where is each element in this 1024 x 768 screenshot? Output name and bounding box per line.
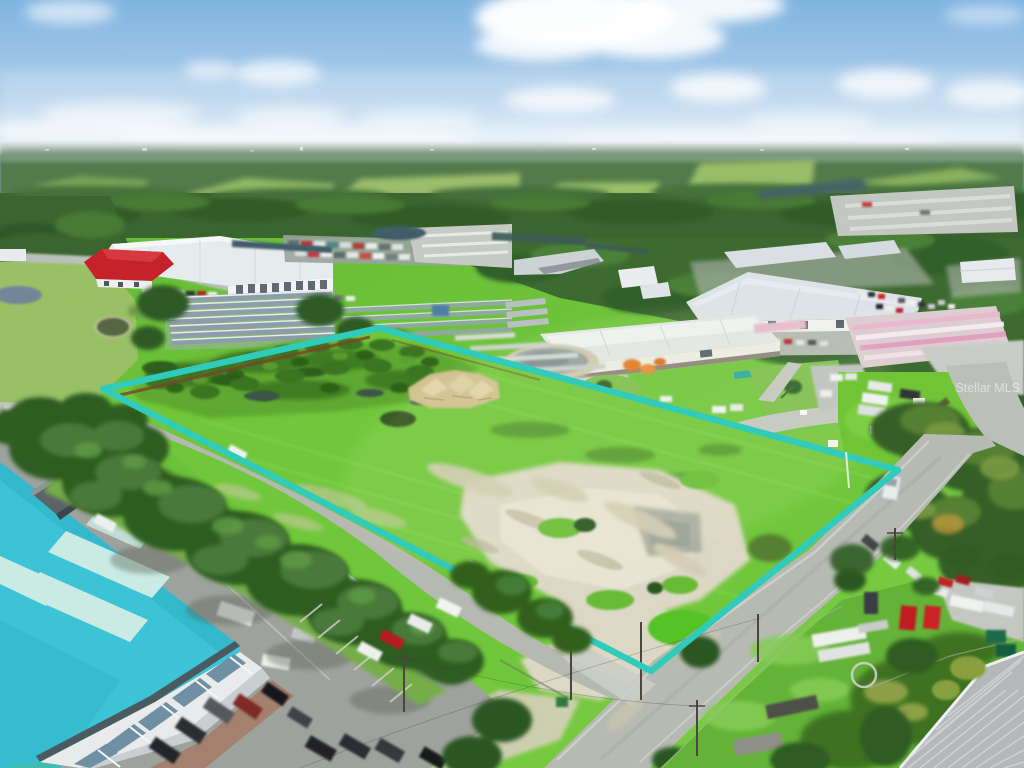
svg-text:Stellar MLS: Stellar MLS: [955, 381, 1020, 395]
